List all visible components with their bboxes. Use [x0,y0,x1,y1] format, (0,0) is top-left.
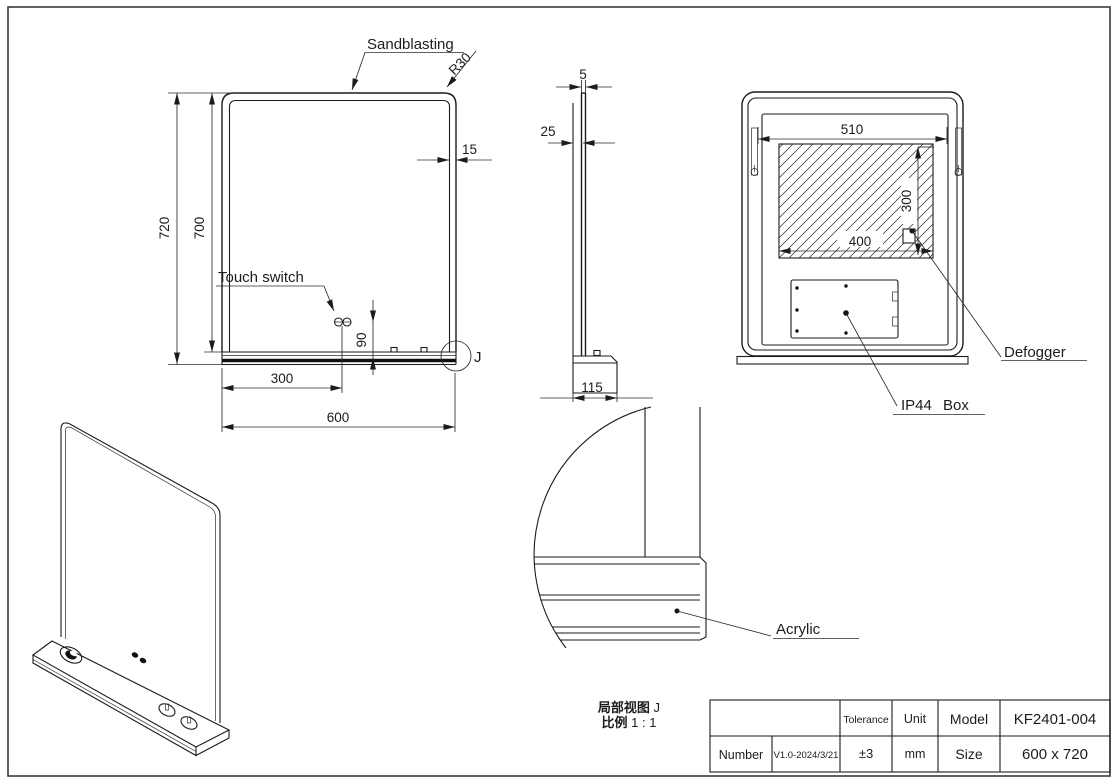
detail-view-j: Acrylic 局部视图 J 比例 1 : 1 [534,407,859,730]
dim-300-back: 300 [899,190,914,213]
drawing-sheet: J 720 700 15 90 300 600 Sandblasting [0,0,1118,784]
acrylic-callout: Acrylic [773,621,859,639]
shelf-3d [33,641,229,756]
shelf-clip [391,348,397,353]
unit-header: Unit [904,712,927,726]
engineering-drawing: J 720 700 15 90 300 600 Sandblasting [0,0,1118,784]
detail-caption-name: 局部视图 [598,700,650,715]
shelf-clip [421,348,427,353]
dim-90: 90 [354,332,369,347]
dim-600: 600 [327,410,350,425]
tolerance-header: Tolerance [843,714,889,726]
dim-15: 15 [462,142,477,157]
number-header: Number [719,748,763,762]
unit-value: mm [905,747,926,761]
hanger-bracket-left [751,128,758,176]
dim-115: 115 [581,380,603,395]
model-header: Model [950,711,988,727]
dim-400: 400 [849,234,872,249]
acrylic-label: Acrylic [776,621,821,638]
front-shelf [222,348,456,365]
perspective-view [33,423,229,756]
shelf-clip [594,351,600,356]
detail-caption-scale-label: 比例 [602,715,628,730]
model-value: KF2401-004 [1014,711,1097,728]
detail-caption-marker: J [650,700,660,715]
size-value: 600 x 720 [1022,746,1088,763]
sandblasting-label: Sandblasting [367,36,454,53]
sheet-border [8,7,1110,776]
sandblasting-callout: Sandblasting [352,36,464,90]
number-value: V1.0-2024/3/21 [774,750,839,761]
tolerance-value: ±3 [859,746,873,761]
dim-25: 25 [540,124,555,139]
back-shelf-strip [737,357,968,365]
hanger-bracket-right [955,128,962,176]
front-view: J 720 700 15 90 300 600 Sandblasting [157,36,492,432]
dim-r30: R30 [446,50,474,78]
touch-switch-dots [335,318,352,326]
dim-700: 700 [192,217,207,240]
touch-switch-callout: Touch switch [216,269,334,311]
svg-text:局部视图 J: 局部视图 J [598,700,660,715]
touch-dot [139,657,147,665]
touch-switch-label: Touch switch [218,269,304,286]
size-header: Size [955,746,982,762]
detail-caption: 局部视图 J 比例 1 : 1 [598,700,660,730]
side-view: 5 25 115 [540,67,653,402]
ip44-box [791,280,898,338]
mirror-outline [222,93,456,352]
dim-300: 300 [271,371,294,386]
defogger-callout: Defogger [1001,344,1087,361]
title-block: Tolerance Unit Model KF2401-004 Number V… [710,700,1110,772]
dim-720: 720 [157,217,172,240]
dim-510: 510 [841,122,864,137]
ip44-callout: IP44 Box [893,397,985,415]
detail-boundary-arc [534,407,651,648]
detail-marker-j: J [474,349,482,366]
dim-5: 5 [579,67,587,82]
ip44-label: IP44 Box [901,397,969,414]
defogger-label: Defogger [1004,344,1066,361]
detail-caption-scale-value: 1 : 1 [628,715,657,730]
sandblasting-border-line [230,101,450,353]
svg-text:比例 1 : 1: 比例 1 : 1 [602,715,657,730]
touch-dot [131,651,139,659]
